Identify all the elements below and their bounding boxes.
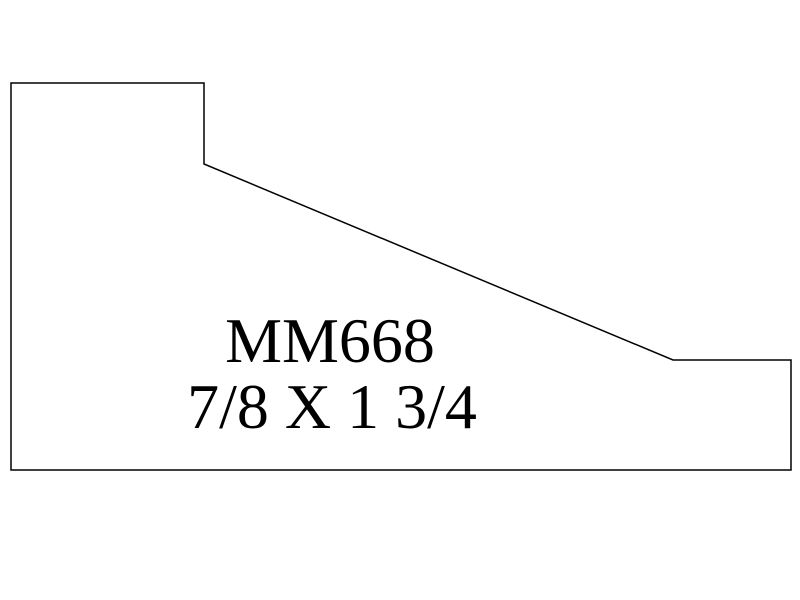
drawing-canvas: MM668 7/8 X 1 3/4: [0, 0, 800, 600]
molding-profile-drawing: MM668 7/8 X 1 3/4: [0, 0, 800, 600]
profile-dimensions-label: 7/8 X 1 3/4: [187, 371, 477, 442]
profile-number-label: MM668: [225, 305, 435, 376]
